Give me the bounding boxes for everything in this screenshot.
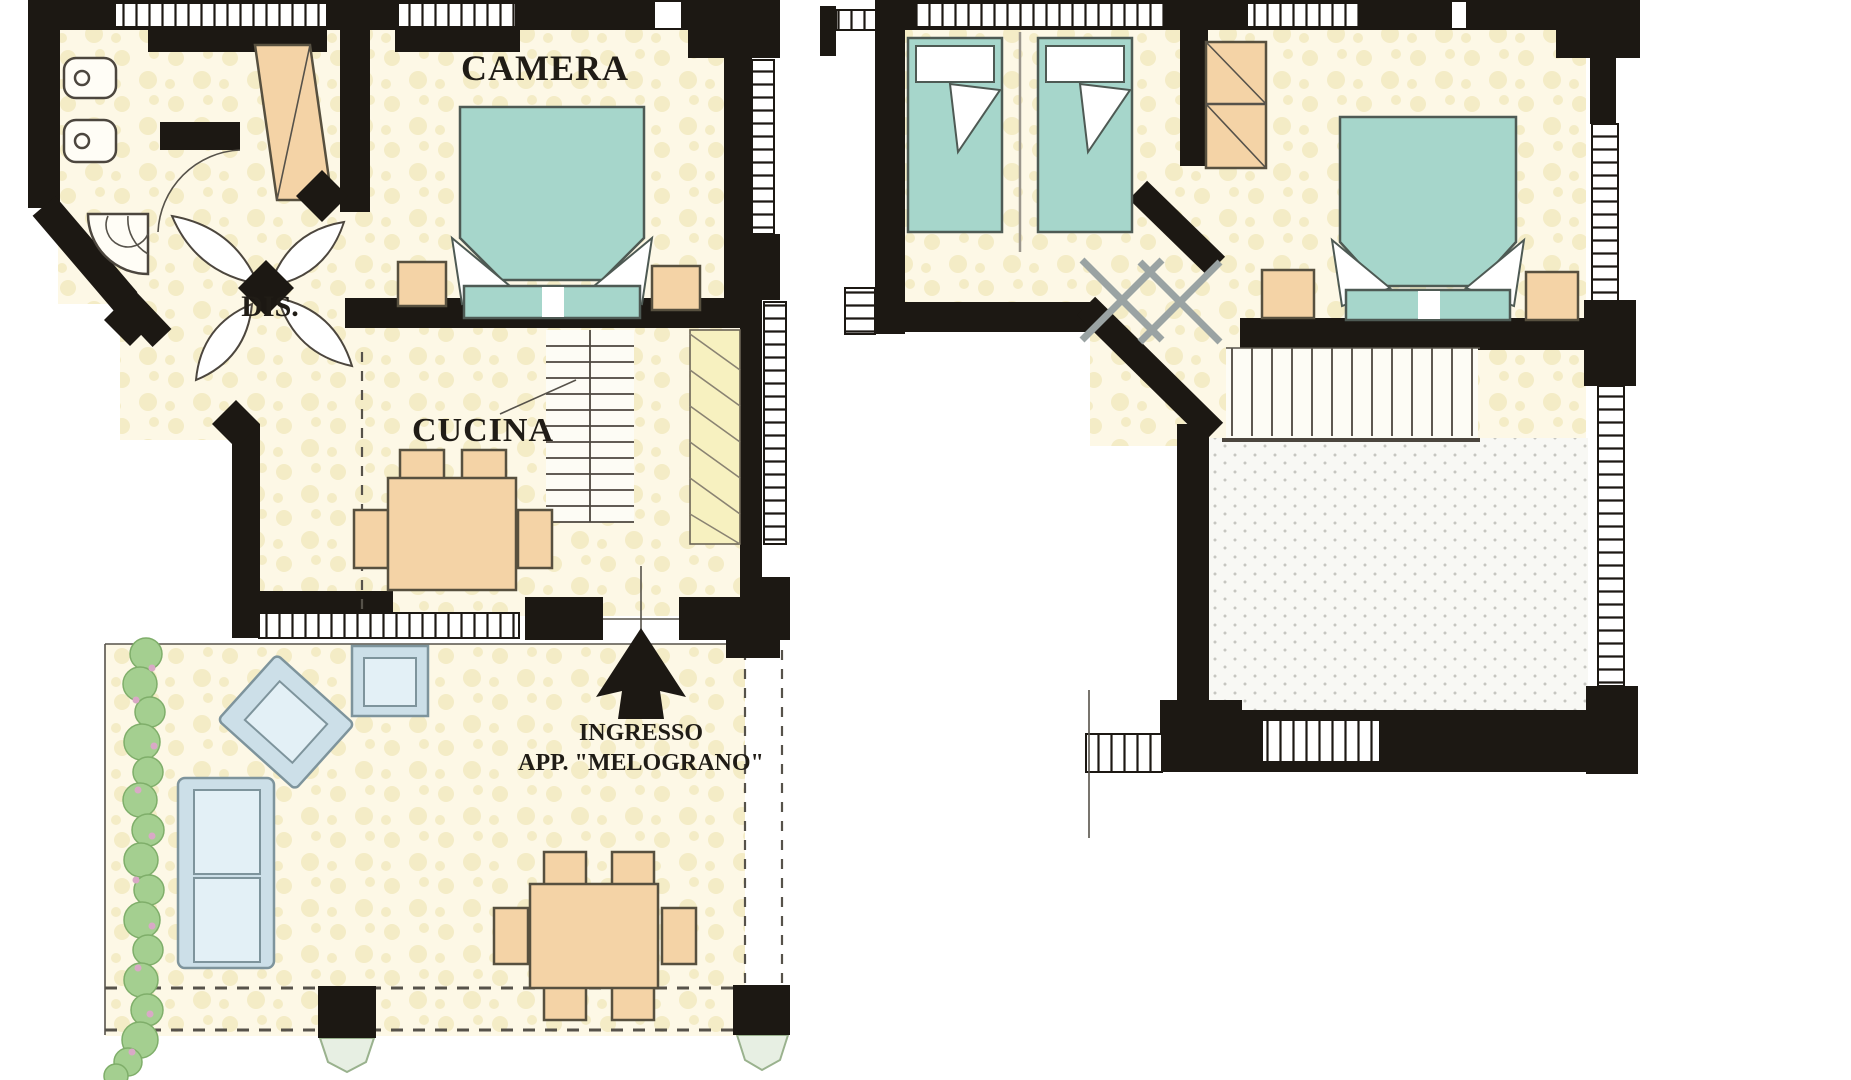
floor-plan-drawing: CAMERA DIS. CUCINA INGRESSO APP. "MELOGR… bbox=[0, 0, 1851, 1080]
window-right-lower bbox=[764, 302, 786, 544]
chair bbox=[612, 986, 654, 1020]
chair bbox=[544, 986, 586, 1020]
window-bottomleft-exterior bbox=[1086, 690, 1162, 838]
double-bed bbox=[452, 107, 652, 318]
kitchen-west-wall bbox=[232, 424, 260, 638]
nightstand-right bbox=[652, 266, 700, 310]
window-right-upper bbox=[752, 60, 774, 234]
upper-terrace-floor bbox=[1209, 438, 1588, 710]
bedroom-divider-wall bbox=[1180, 28, 1208, 166]
window-top-double bbox=[1247, 3, 1359, 27]
twin-bedroom bbox=[908, 32, 1132, 252]
room-label-camera: CAMERA bbox=[461, 48, 629, 88]
kitchen-table bbox=[388, 478, 516, 590]
nightstand-right bbox=[1526, 272, 1578, 320]
single-bed-2 bbox=[1038, 38, 1132, 232]
wardrobe bbox=[1206, 42, 1266, 168]
pillar bbox=[318, 986, 376, 1038]
nightstand-left bbox=[1262, 270, 1314, 318]
bathroom-divider-wall bbox=[340, 30, 370, 212]
entrance-label-line2: APP. "MELOGRANO" bbox=[518, 750, 764, 776]
chair bbox=[662, 908, 696, 964]
window-top-camera bbox=[398, 3, 516, 27]
bathroom-stub-wall bbox=[160, 122, 240, 150]
chair bbox=[354, 510, 388, 568]
pillar bbox=[733, 985, 790, 1035]
staircase-upper bbox=[1222, 348, 1480, 440]
room-label-cucina: CUCINA bbox=[412, 412, 554, 449]
room-label-dis: DIS. bbox=[241, 290, 299, 323]
window-right-upper-floor1 bbox=[1592, 124, 1618, 302]
chair bbox=[544, 852, 586, 886]
nightstand-left bbox=[398, 262, 446, 306]
outdoor-chair-small bbox=[352, 646, 428, 716]
counter-hatch-strip bbox=[690, 330, 740, 544]
railing-bottom bbox=[259, 613, 519, 638]
chair bbox=[612, 852, 654, 886]
window-right-lower-floor1 bbox=[1598, 386, 1624, 686]
ground-floor-plan: CAMERA DIS. CUCINA INGRESSO APP. "MELOGR… bbox=[28, 0, 790, 1080]
window-topleft-exterior bbox=[820, 6, 876, 56]
outdoor-sofa bbox=[178, 778, 274, 968]
terrace-table bbox=[530, 884, 658, 988]
window-top-left bbox=[115, 3, 327, 27]
chair bbox=[518, 510, 552, 568]
single-bed-1 bbox=[908, 38, 1002, 232]
window-bottom-floor1 bbox=[1262, 720, 1380, 762]
chair bbox=[494, 908, 528, 964]
entrance-label-line1: INGRESSO bbox=[579, 720, 703, 746]
window-top-twin bbox=[915, 3, 1165, 27]
window-left-exterior bbox=[845, 288, 875, 334]
floor-plan-canvas: CAMERA DIS. CUCINA INGRESSO APP. "MELOGR… bbox=[0, 0, 1851, 1080]
double-bed-upper bbox=[1332, 117, 1524, 320]
upper-floor-plan bbox=[820, 0, 1640, 838]
